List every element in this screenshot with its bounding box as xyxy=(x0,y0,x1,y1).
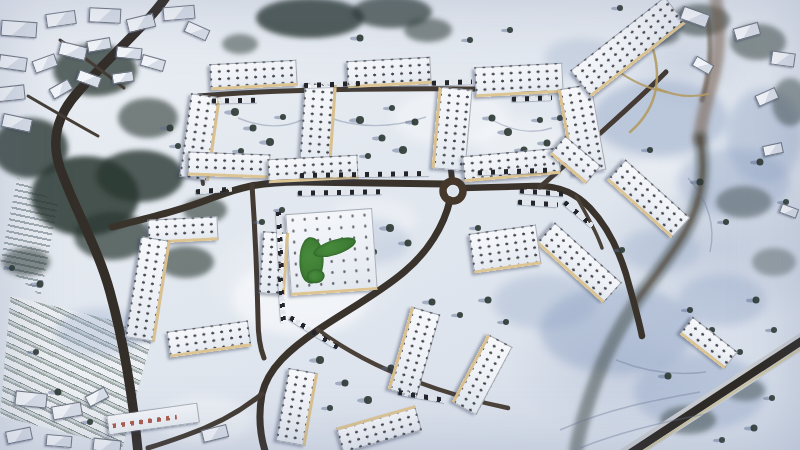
tree xyxy=(231,108,239,116)
snow-trail xyxy=(238,118,302,126)
apartment-block xyxy=(267,155,358,184)
tree xyxy=(537,117,543,123)
roundabout-island xyxy=(449,187,458,196)
house xyxy=(0,84,26,102)
apartment-block xyxy=(209,60,297,91)
tree-cluster xyxy=(256,0,364,38)
tree xyxy=(250,125,257,132)
tree xyxy=(485,297,492,304)
tree xyxy=(503,319,509,325)
tree xyxy=(771,327,777,333)
tree-cluster xyxy=(752,248,796,276)
tree xyxy=(617,5,623,11)
tree xyxy=(364,396,372,404)
tree xyxy=(412,119,419,126)
green-courtyard-lawn xyxy=(311,233,357,261)
tree xyxy=(356,116,364,124)
house xyxy=(46,434,73,448)
tree xyxy=(719,437,725,443)
apartment-block xyxy=(299,83,337,167)
tree xyxy=(757,159,764,166)
tree xyxy=(457,312,463,318)
apartment-block xyxy=(259,231,289,295)
tree xyxy=(357,35,364,42)
tree xyxy=(167,125,174,132)
tree xyxy=(342,380,349,387)
tree-cluster xyxy=(222,34,258,54)
tree-cluster xyxy=(118,98,178,138)
apartment-block xyxy=(188,152,271,179)
apartment-block xyxy=(474,63,563,98)
house xyxy=(162,5,195,22)
tree xyxy=(544,140,551,147)
tree-cluster xyxy=(716,186,772,218)
tree xyxy=(55,389,62,396)
aerial-photo xyxy=(0,0,800,450)
tree xyxy=(504,128,512,136)
tree xyxy=(647,147,653,153)
tree xyxy=(327,405,333,411)
tree xyxy=(175,143,181,149)
tree xyxy=(9,265,15,271)
tree xyxy=(619,247,625,253)
green-courtyard-lawn xyxy=(306,269,325,284)
tree-cluster xyxy=(404,18,452,42)
tree xyxy=(665,373,672,380)
tree xyxy=(753,297,760,304)
house xyxy=(115,46,142,61)
tree xyxy=(769,395,775,401)
tree xyxy=(405,240,412,247)
tree xyxy=(37,281,44,288)
tree xyxy=(266,138,274,146)
house xyxy=(14,390,47,408)
house xyxy=(0,20,37,38)
tree xyxy=(259,219,265,225)
residential-complex-building xyxy=(285,208,378,296)
tree xyxy=(365,153,371,159)
tree-cluster xyxy=(96,150,184,202)
tree xyxy=(389,105,395,111)
tree xyxy=(316,356,324,364)
house xyxy=(89,7,122,24)
house xyxy=(111,70,134,84)
tree xyxy=(379,135,386,142)
tree xyxy=(429,299,436,306)
tree xyxy=(737,349,743,355)
tree xyxy=(489,115,496,122)
tree xyxy=(33,349,39,355)
tree xyxy=(386,224,394,232)
tree xyxy=(399,146,407,154)
tree xyxy=(87,419,93,425)
tree xyxy=(507,27,513,33)
tree xyxy=(280,114,286,120)
tree xyxy=(687,307,693,313)
parked-cars-row xyxy=(212,98,258,104)
tree xyxy=(467,37,473,43)
tree xyxy=(723,219,729,225)
tree xyxy=(475,225,481,231)
tree xyxy=(751,425,758,432)
tree xyxy=(697,179,704,186)
tree-cluster xyxy=(2,248,50,276)
